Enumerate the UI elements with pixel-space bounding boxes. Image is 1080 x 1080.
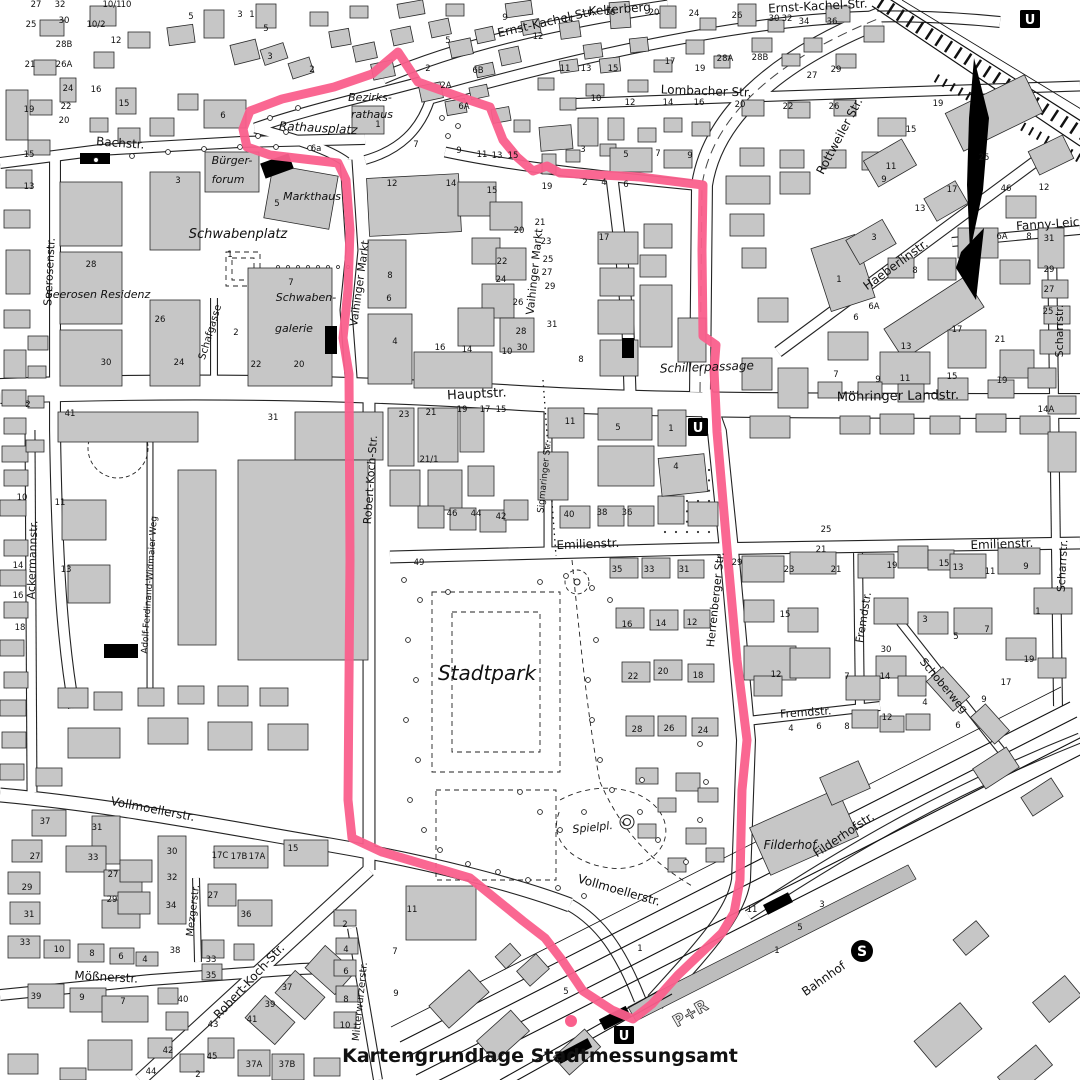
house-number: 21: [25, 60, 36, 70]
place-label: forum: [212, 173, 245, 186]
house-number: 17: [952, 325, 963, 335]
house-number: 49: [414, 558, 425, 568]
building: [598, 446, 654, 486]
house-number: 29: [22, 883, 33, 893]
house-number: 39: [31, 992, 42, 1002]
house-number: 24: [63, 84, 74, 94]
house-number: 35: [612, 565, 623, 575]
house-number: 4: [601, 178, 606, 188]
building: [68, 728, 120, 758]
house-number: 11: [985, 567, 996, 577]
building: [638, 128, 656, 142]
house-number: 37: [40, 817, 51, 827]
house-number: 27: [542, 268, 553, 278]
house-number: 24: [496, 275, 507, 285]
house-number: 3: [871, 233, 876, 243]
building: [788, 608, 818, 632]
house-number: 12: [533, 32, 544, 42]
building: [706, 848, 724, 862]
house-number: 1: [249, 10, 254, 20]
building: [58, 412, 198, 442]
building: [166, 1012, 188, 1030]
house-number: 6: [343, 967, 348, 977]
house-number: 5: [953, 632, 958, 642]
house-number: 46: [447, 509, 458, 519]
building: [88, 1040, 132, 1070]
house-number: 13: [492, 151, 503, 161]
building: [4, 350, 26, 378]
house-number: 21: [831, 565, 842, 575]
house-number: 27: [807, 71, 818, 81]
building: [852, 710, 878, 728]
house-number: 9: [502, 13, 507, 23]
house-number: 9: [981, 695, 986, 705]
building: [234, 944, 254, 960]
house-number: 4: [788, 724, 793, 734]
house-number: 43: [208, 1020, 219, 1030]
house-number: 13: [24, 182, 35, 192]
tree-symbol: [274, 145, 279, 150]
building: [62, 500, 106, 540]
building: [846, 676, 880, 700]
house-number: 23: [399, 410, 410, 420]
house-number: 17: [480, 405, 491, 415]
house-number: 6A: [458, 102, 469, 112]
building: [120, 860, 152, 882]
house-number: 9: [881, 175, 886, 185]
house-number: 36: [827, 17, 838, 27]
house-number: 46: [1001, 184, 1012, 194]
building: [128, 32, 150, 48]
house-number: 28B: [752, 53, 769, 63]
building: [178, 470, 216, 645]
house-number: 14: [13, 561, 24, 571]
house-number: 7: [120, 997, 125, 1007]
house-number: 4: [142, 955, 147, 965]
house-number: 31: [1044, 234, 1055, 244]
building: [538, 78, 554, 90]
tree-symbol: [402, 578, 407, 583]
building: [598, 408, 652, 440]
ubahn-icon: U: [688, 418, 708, 436]
tree-symbol: [594, 638, 599, 643]
house-number: 6: [623, 180, 628, 190]
tree-symbol: [704, 780, 709, 785]
house-number: 8: [89, 949, 94, 959]
house-number: 16: [622, 620, 633, 630]
place-label: Bürger-: [212, 154, 253, 167]
building: [686, 40, 704, 54]
house-number: 25: [979, 153, 990, 163]
map-attribution: Kartengrundlage Stadtmessungsamt: [342, 1045, 738, 1067]
building: [6, 90, 28, 140]
house-number: 38: [170, 946, 181, 956]
house-number: 24: [174, 358, 185, 368]
district-boundary-dot: [565, 1015, 577, 1027]
house-number: 1: [774, 946, 779, 956]
house-number: 13: [901, 342, 912, 352]
house-number: 14A: [1038, 405, 1055, 415]
house-number: 37B: [279, 1060, 296, 1070]
building: [638, 824, 656, 838]
building: [752, 38, 772, 52]
place-label: Bezirks-: [348, 91, 392, 104]
building: [790, 648, 830, 678]
house-number: 8: [387, 271, 392, 281]
house-number: 21: [995, 335, 1006, 345]
tree-symbol: [414, 678, 419, 683]
building: [4, 418, 26, 434]
house-number: 10: [591, 94, 602, 104]
building: [608, 118, 624, 140]
house-number: 29: [831, 65, 842, 75]
tree-symbol: [640, 778, 645, 783]
house-number: 7: [984, 625, 989, 635]
ubahn-icon: U: [1020, 10, 1040, 28]
house-number: 15: [508, 151, 519, 161]
building: [414, 352, 492, 388]
house-number: 4: [343, 945, 348, 955]
house-number: 17: [665, 57, 676, 67]
house-number: 26: [829, 102, 840, 112]
house-number: 40: [178, 995, 189, 1005]
house-number: 11: [477, 150, 488, 160]
tree-symbol: [440, 116, 445, 121]
house-number: 5: [445, 36, 450, 46]
house-number: 22: [497, 257, 508, 267]
building: [150, 300, 200, 386]
house-number: 10: [502, 347, 513, 357]
house-number: 18: [15, 623, 26, 633]
house-number: 28: [86, 260, 97, 270]
house-number: 7: [392, 947, 397, 957]
building: [368, 314, 412, 384]
house-number: 29: [732, 558, 743, 568]
house-number: 5: [797, 923, 802, 933]
house-number: 20: [658, 667, 669, 677]
house-number: 26A: [56, 60, 73, 70]
building: [418, 408, 458, 462]
house-number: 29: [107, 895, 118, 905]
house-number: 12: [771, 670, 782, 680]
building: [1028, 368, 1056, 388]
building: [566, 150, 580, 162]
tree-symbol: [556, 886, 561, 891]
house-number: 12: [111, 36, 122, 46]
house-number: 12: [687, 618, 698, 628]
tree-symbol: [582, 894, 587, 899]
building: [28, 336, 48, 350]
house-number: 15: [288, 844, 299, 854]
house-number: 24: [698, 726, 709, 736]
house-number: 37A: [246, 1060, 263, 1070]
house-number: 30: [101, 358, 112, 368]
house-number: 7: [288, 278, 293, 288]
tree-symbol: [438, 848, 443, 853]
building: [878, 118, 906, 136]
house-number: 9: [687, 151, 692, 161]
house-number: 11: [886, 162, 897, 172]
map-hatch: [622, 338, 634, 358]
house-number: 10/1: [102, 0, 121, 10]
house-number: 33: [20, 938, 31, 948]
building: [598, 300, 634, 334]
house-number: 42: [163, 1046, 174, 1056]
street-label: Emilienstr.: [970, 536, 1033, 552]
house-number: 30: [769, 14, 780, 24]
tree-symbol: [238, 145, 243, 150]
house-number: 3: [922, 615, 927, 625]
tree-symbol: [130, 154, 135, 159]
tree-symbol: [422, 828, 427, 833]
building: [34, 60, 56, 75]
house-number: 21/1: [419, 455, 438, 465]
tree-symbol: [590, 718, 595, 723]
house-number: 8: [343, 995, 348, 1005]
house-number: 22: [61, 102, 72, 112]
house-number: 1: [1035, 607, 1040, 617]
building: [178, 94, 198, 110]
house-number: 28: [632, 725, 643, 735]
street-label: Scharrstr.: [1055, 539, 1071, 592]
dot-pattern: [708, 479, 710, 481]
building: [629, 37, 648, 53]
house-number: 20: [59, 116, 70, 126]
house-number: 26: [664, 724, 675, 734]
tree-symbol: [586, 678, 591, 683]
house-number: 39: [265, 1000, 276, 1010]
house-number: 20: [735, 100, 746, 110]
house-number: 16: [13, 591, 24, 601]
house-number: 14: [656, 619, 667, 629]
house-number: 3: [819, 900, 824, 910]
house-number: 2: [25, 400, 30, 410]
building: [58, 688, 88, 708]
tree-symbol: [698, 818, 703, 823]
building: [428, 470, 462, 510]
map-container: KelterbergErnst-Kachel-Str.Ernst-Kachel-…: [0, 0, 1080, 1080]
house-number: 30: [881, 645, 892, 655]
building: [640, 285, 672, 347]
house-number: 11: [407, 905, 418, 915]
building: [1000, 260, 1030, 284]
house-number: 15: [906, 125, 917, 135]
house-number: 10/2: [86, 20, 105, 30]
house-number: 12: [882, 713, 893, 723]
street-surface: [30, 430, 32, 792]
house-number: 19: [542, 182, 553, 192]
building: [4, 602, 28, 618]
house-number: 6: [118, 952, 123, 962]
house-number: 14: [663, 98, 674, 108]
house-number: 32: [167, 873, 178, 883]
building: [60, 182, 122, 246]
house-number: 9: [393, 989, 398, 999]
tree-symbol: [456, 124, 461, 129]
house-number: 14: [462, 345, 473, 355]
house-number: 13: [61, 565, 72, 575]
house-number: 13: [915, 204, 926, 214]
house-number: 16: [694, 98, 705, 108]
house-number: 15: [608, 64, 619, 74]
house-number: 32: [55, 0, 66, 10]
house-number: 33: [88, 853, 99, 863]
house-number: 15: [780, 610, 791, 620]
house-number: 6: [955, 721, 960, 731]
house-number: 27: [108, 870, 119, 880]
building: [2, 446, 28, 462]
tree-symbol: [268, 116, 273, 121]
building: [600, 268, 634, 296]
house-number: 31: [547, 320, 558, 330]
tree-symbol: [608, 598, 613, 603]
tree-symbol: [296, 106, 301, 111]
tree-symbol: [526, 878, 531, 883]
building: [90, 118, 108, 132]
building: [350, 6, 368, 18]
city-map: KelterbergErnst-Kachel-Str.Ernst-Kachel-…: [0, 0, 1080, 1080]
house-number: 11: [560, 64, 571, 74]
house-number: 6: [386, 294, 391, 304]
building: [804, 38, 822, 52]
tree-symbol: [582, 810, 587, 815]
building: [390, 470, 420, 506]
house-number: 26: [732, 11, 743, 21]
house-number: 11: [55, 498, 66, 508]
house-number: 17: [599, 233, 610, 243]
house-number: 19: [457, 405, 468, 415]
building: [726, 176, 770, 204]
building: [778, 368, 808, 408]
house-number: 10: [121, 0, 132, 10]
house-number: 30: [517, 343, 528, 353]
house-number: 6a: [311, 144, 322, 154]
house-number: 36: [241, 910, 252, 920]
tree-symbol: [538, 580, 543, 585]
building: [66, 846, 106, 872]
house-number: 14: [446, 179, 457, 189]
building: [504, 500, 528, 520]
building: [0, 640, 24, 656]
house-number: 16: [91, 85, 102, 95]
house-number: 14: [563, 15, 574, 25]
dot-pattern: [675, 531, 677, 533]
house-number: 5: [615, 423, 620, 433]
building: [583, 43, 603, 59]
building: [6, 250, 30, 294]
house-number: 35: [206, 971, 217, 981]
building: [268, 724, 308, 750]
dot-pattern: [664, 531, 666, 533]
house-number: 5: [563, 987, 568, 997]
house-number: 44: [471, 509, 482, 519]
house-number: 1: [668, 424, 673, 434]
building: [658, 454, 708, 497]
house-number: 19: [695, 64, 706, 74]
house-number: 2: [195, 1070, 200, 1080]
building: [118, 892, 150, 914]
house-number: 19: [24, 105, 35, 115]
house-number: 12: [625, 98, 636, 108]
building: [688, 502, 718, 526]
building: [928, 258, 956, 280]
svg-text:S: S: [857, 944, 867, 960]
house-number: 25: [26, 20, 37, 30]
building: [1006, 196, 1036, 218]
building: [2, 732, 26, 748]
house-number: 25: [1043, 307, 1054, 317]
tree-symbol: [408, 798, 413, 803]
house-number: 23: [784, 565, 795, 575]
house-number: 21: [426, 408, 437, 418]
building: [314, 1058, 340, 1076]
place-label: galerie: [275, 322, 313, 335]
house-number: 27: [31, 0, 42, 10]
building: [68, 565, 110, 603]
building: [539, 125, 573, 152]
building: [864, 26, 884, 42]
house-number: 3: [237, 10, 242, 20]
house-number: 5: [263, 24, 268, 34]
building: [686, 828, 706, 844]
building: [742, 248, 766, 268]
house-number: 45: [207, 1052, 218, 1062]
place-label: rathaus: [351, 108, 393, 121]
house-number: 16: [435, 343, 446, 353]
house-number: 25: [821, 525, 832, 535]
street-label: Emilienstr.: [556, 536, 619, 552]
house-number: 6B: [472, 66, 483, 76]
house-number: 19: [1024, 655, 1035, 665]
building: [668, 858, 686, 872]
house-number: 15: [24, 150, 35, 160]
house-number: 24: [689, 9, 700, 19]
house-number: 6: [816, 722, 821, 732]
svg-text:U: U: [1025, 13, 1036, 28]
house-number: 22: [783, 102, 794, 112]
building: [948, 330, 986, 368]
house-number: 5: [274, 199, 279, 209]
house-number: 41: [65, 409, 76, 419]
house-number: 10: [340, 1021, 351, 1031]
building: [658, 496, 684, 524]
building: [150, 118, 174, 136]
house-number: 4: [392, 337, 397, 347]
house-number: 1: [836, 275, 841, 285]
building: [758, 298, 788, 322]
building: [4, 310, 30, 328]
house-number: 23: [541, 237, 552, 247]
house-number: 19: [933, 99, 944, 109]
tree-symbol: [404, 718, 409, 723]
house-number: 6A: [996, 232, 1007, 242]
house-number: 3: [175, 176, 180, 186]
building: [780, 172, 810, 194]
building: [1048, 432, 1076, 472]
house-number: 19: [997, 376, 1008, 386]
house-number: 7: [844, 672, 849, 682]
house-number: 27: [208, 891, 219, 901]
building: [60, 1068, 86, 1080]
building: [698, 788, 718, 802]
dot-pattern: [708, 469, 710, 471]
building: [0, 764, 24, 780]
house-number: 2: [309, 65, 314, 75]
building: [458, 308, 494, 346]
house-number: 33: [644, 565, 655, 575]
tree-symbol: [684, 860, 689, 865]
building: [828, 332, 868, 360]
